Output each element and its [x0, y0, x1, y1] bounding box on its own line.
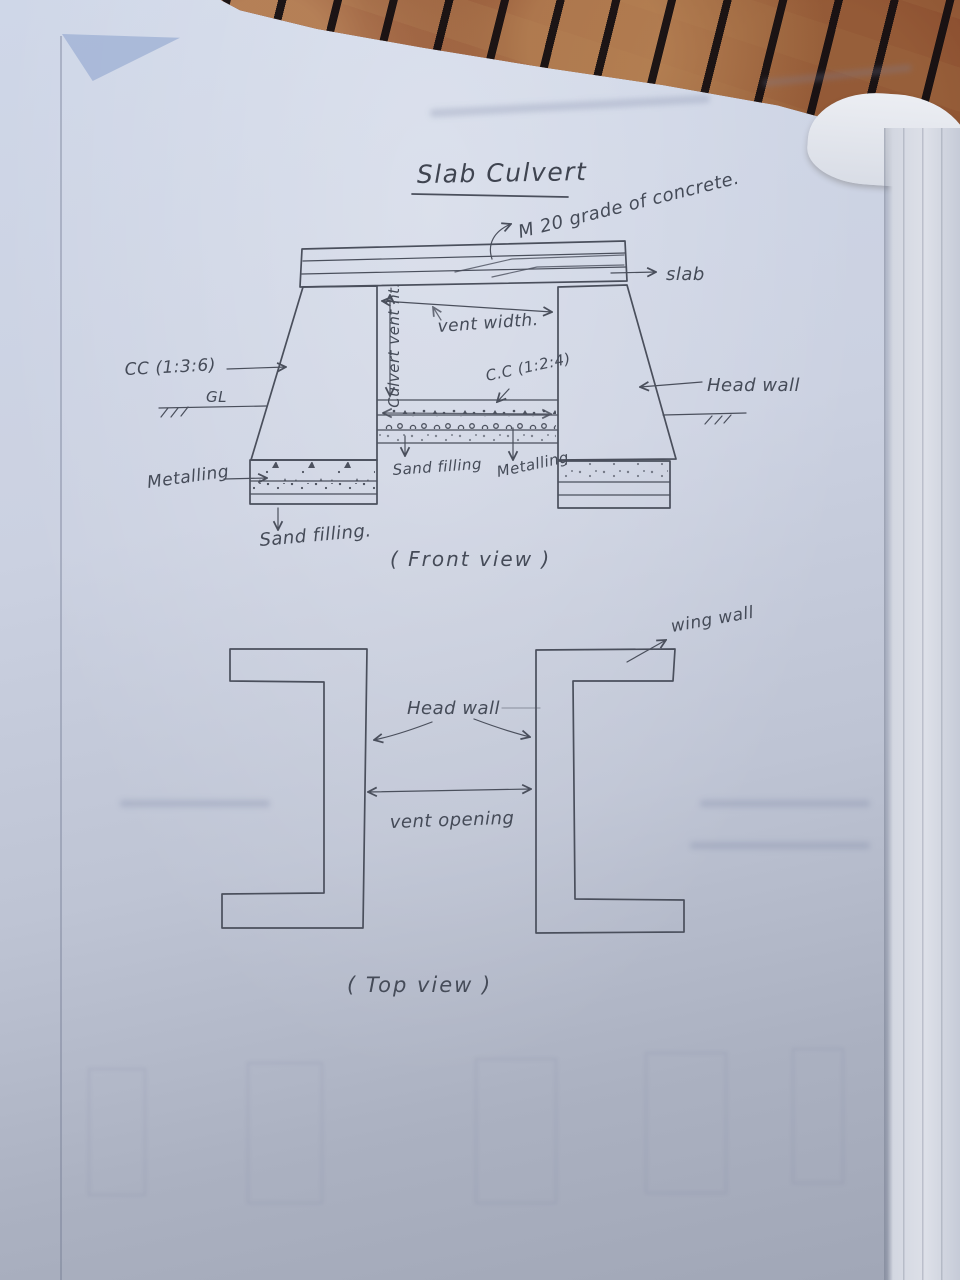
head-wall-arrow-front: [640, 382, 702, 387]
left-abutment-shape: [251, 286, 377, 460]
label-sand-filling-center: Sand filling: [392, 455, 483, 479]
wing-wall-arrow: [627, 640, 666, 662]
left-foundation: [250, 460, 377, 504]
label-vent-opening: vent opening: [389, 808, 514, 833]
label-vent-width: vent width.: [437, 310, 539, 337]
cc136-arrow: [227, 367, 286, 369]
page-title: Slab Culvert: [417, 157, 588, 189]
slab-arrow: [611, 272, 656, 273]
left-headwall-wingwall-shape: [222, 649, 367, 928]
top-view: wing wall Head wall vent opening ( Top v…: [222, 603, 755, 997]
label-head-wall-top: Head wall: [407, 698, 500, 719]
front-view-caption: ( Front view ): [390, 547, 551, 571]
label-cc-1-3-6: CC (1:3:6): [124, 355, 216, 380]
ground-level-right: [663, 413, 746, 424]
front-view: Culvert vent ht. vent width. M 20 grade …: [124, 168, 800, 571]
label-wing-wall: wing wall: [669, 603, 755, 637]
title-underline: [412, 194, 568, 197]
right-headwall-wingwall-shape: [536, 649, 684, 933]
title-group: Slab Culvert: [412, 157, 588, 197]
label-slab: slab: [666, 264, 705, 285]
slab-lap-line: [492, 265, 624, 277]
label-metalling-left: Metalling: [146, 462, 230, 493]
vent-opening-dimension: [368, 789, 531, 792]
concrete-grade-arrow: [490, 224, 511, 259]
right-foundation: [558, 461, 670, 508]
ground-level-left: GL: [159, 388, 266, 417]
slab-culvert-sketch: Slab Culvert: [0, 0, 960, 1280]
slab-shape: [300, 241, 627, 287]
label-ground-level: GL: [206, 388, 227, 406]
notebook-photo: Slab Culvert: [0, 0, 960, 1280]
head-wall-arrow-right: [474, 719, 530, 737]
head-wall-arrow-left: [374, 722, 432, 740]
label-sand-filling-bottom: Sand filling.: [259, 520, 373, 551]
label-head-wall-front: Head wall: [707, 375, 800, 396]
top-view-caption: ( Top view ): [347, 973, 492, 997]
label-metalling-center: Metalling: [495, 448, 570, 481]
label-cc-1-2-4: C.C (1:2:4): [484, 349, 572, 385]
right-abutment-shape: [558, 285, 676, 460]
